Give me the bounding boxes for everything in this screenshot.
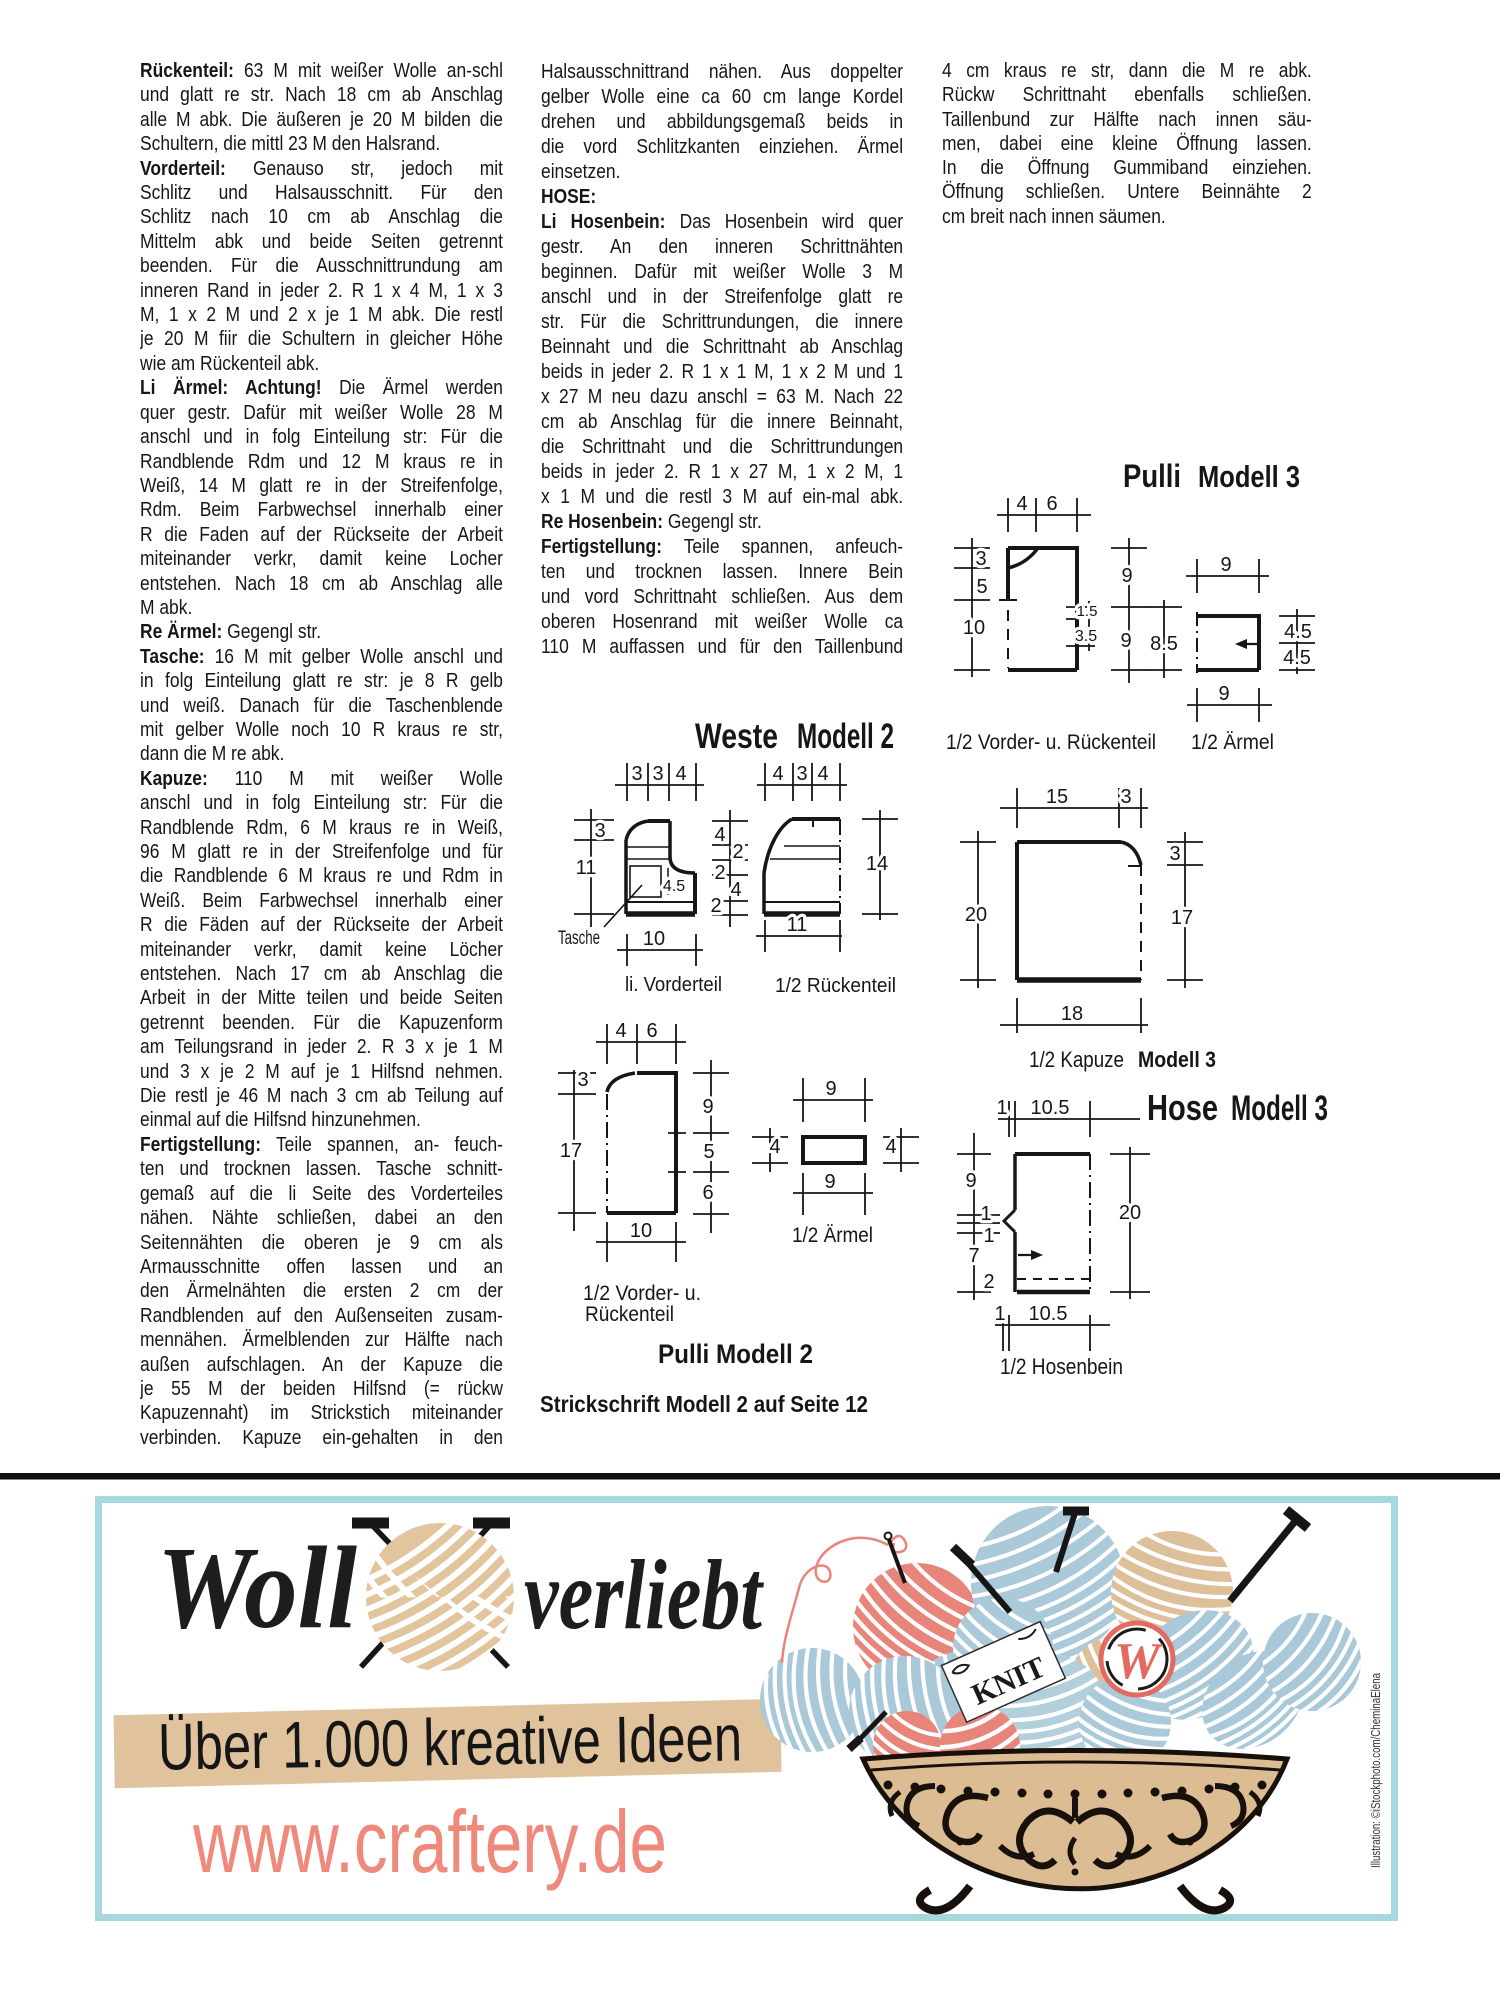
svg-text:W: W	[1114, 1633, 1164, 1690]
svg-text:3: 3	[796, 763, 807, 785]
svg-text:15: 15	[1046, 786, 1068, 808]
svg-text:Tasche: Tasche	[558, 928, 600, 949]
svg-text:6: 6	[702, 1182, 713, 1204]
svg-text:9: 9	[825, 1078, 836, 1100]
svg-text:17: 17	[560, 1140, 582, 1162]
svg-text:1/2 Ärmel: 1/2 Ärmel	[1191, 731, 1274, 754]
svg-text:1/2 Rückenteil: 1/2 Rückenteil	[775, 975, 896, 997]
svg-text:Pulli: Pulli	[1123, 458, 1181, 494]
svg-text:18: 18	[1061, 1003, 1083, 1025]
svg-text:1: 1	[996, 1097, 1007, 1119]
svg-text:4: 4	[817, 763, 828, 785]
svg-text:2: 2	[710, 895, 721, 917]
svg-text:3: 3	[631, 763, 642, 785]
svg-text:Modell 3: Modell 3	[1231, 1089, 1328, 1128]
svg-text:8.5: 8.5	[1150, 633, 1178, 655]
svg-text:6: 6	[646, 1020, 657, 1042]
svg-text:9: 9	[1220, 554, 1231, 576]
svg-text:verliebt: verliebt	[524, 1539, 765, 1650]
svg-text:1.5: 1.5	[1077, 603, 1098, 620]
svg-text:1/2 Hosenbein: 1/2 Hosenbein	[1000, 1354, 1123, 1379]
svg-text:3.5: 3.5	[1075, 628, 1097, 645]
svg-text:11: 11	[787, 914, 808, 936]
svg-text:Woll: Woll	[157, 1522, 357, 1653]
svg-text:10.5: 10.5	[1031, 1097, 1070, 1119]
svg-text:4: 4	[885, 1136, 896, 1158]
svg-text:20: 20	[965, 904, 987, 926]
svg-text:9: 9	[702, 1096, 713, 1118]
svg-text:6: 6	[1046, 493, 1057, 515]
svg-text:9: 9	[965, 1170, 976, 1192]
svg-text:4: 4	[714, 824, 725, 846]
svg-text:3: 3	[577, 1069, 588, 1091]
svg-text:Modell 3: Modell 3	[1138, 1047, 1216, 1072]
svg-text:9: 9	[1121, 565, 1132, 587]
svg-text:3: 3	[652, 763, 663, 785]
svg-text:1: 1	[983, 1225, 994, 1247]
svg-text:Pulli Modell 2: Pulli Modell 2	[658, 1339, 813, 1369]
svg-text:www.craftery.de: www.craftery.de	[192, 1792, 667, 1891]
svg-text:10: 10	[963, 617, 985, 639]
svg-text:Über 1.000 kreative Ideen: Über 1.000 kreative Ideen	[157, 1700, 742, 1783]
svg-text:1: 1	[994, 1303, 1005, 1325]
svg-text:4: 4	[615, 1020, 626, 1042]
svg-text:1/2 Ärmel: 1/2 Ärmel	[792, 1224, 873, 1247]
svg-text:17: 17	[1171, 907, 1193, 929]
svg-text:Hose: Hose	[1147, 1087, 1218, 1128]
svg-text:2: 2	[732, 841, 743, 863]
svg-text:Illustration: ©iStockphoto.com: Illustration: ©iStockphoto.com/CheminaEl…	[1369, 1673, 1383, 1868]
svg-text:3: 3	[975, 548, 986, 570]
svg-text:Modell 3: Modell 3	[1198, 459, 1300, 494]
svg-text:10.5: 10.5	[1029, 1303, 1068, 1325]
svg-text:5: 5	[976, 576, 987, 598]
svg-text:10: 10	[630, 1220, 652, 1242]
svg-text:7: 7	[968, 1245, 979, 1267]
svg-text:Modell 2: Modell 2	[797, 717, 894, 756]
svg-text:li. Vorderteil: li. Vorderteil	[625, 974, 722, 996]
svg-text:10: 10	[643, 928, 665, 950]
svg-text:1/2 Vorder- u. Rückenteil: 1/2 Vorder- u. Rückenteil	[946, 731, 1156, 754]
svg-text:4: 4	[675, 763, 686, 785]
svg-text:1/2 Kapuze: 1/2 Kapuze	[1029, 1047, 1124, 1072]
svg-text:4: 4	[772, 763, 783, 785]
svg-text:3: 3	[1169, 843, 1180, 865]
svg-text:4: 4	[769, 1136, 780, 1158]
svg-text:3: 3	[594, 820, 605, 842]
svg-text:2: 2	[983, 1271, 994, 1293]
svg-text:9: 9	[1120, 630, 1131, 652]
svg-text:4: 4	[1016, 493, 1027, 515]
svg-text:1/2 Vorder- u.: 1/2 Vorder- u.	[583, 1282, 701, 1305]
svg-text:14: 14	[866, 853, 888, 875]
svg-text:9: 9	[1218, 683, 1229, 705]
svg-text:9: 9	[824, 1171, 835, 1193]
svg-text:1: 1	[980, 1203, 991, 1225]
svg-text:4: 4	[730, 879, 741, 901]
svg-text:3: 3	[1120, 786, 1131, 808]
svg-text:5: 5	[703, 1141, 714, 1163]
svg-text:Strickschrift Modell 2 auf Sei: Strickschrift Modell 2 auf Seite 12	[540, 1391, 868, 1417]
svg-text:Rückenteil: Rückenteil	[585, 1303, 674, 1326]
svg-text:4.5: 4.5	[663, 878, 685, 895]
svg-text:11: 11	[576, 857, 597, 879]
svg-text:Weste: Weste	[695, 717, 778, 756]
svg-text:4.5: 4.5	[1284, 621, 1312, 643]
svg-text:2: 2	[714, 862, 725, 884]
svg-text:20: 20	[1119, 1202, 1141, 1224]
svg-text:4.5: 4.5	[1283, 647, 1311, 669]
